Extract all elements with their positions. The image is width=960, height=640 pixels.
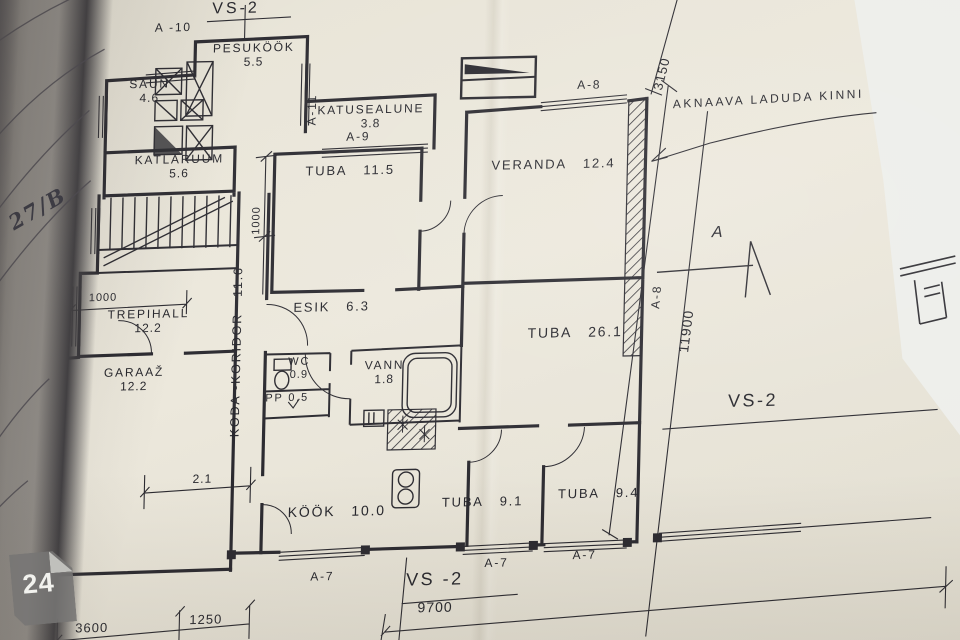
section-label-vs2-right: VS-2: [728, 390, 779, 413]
badge-page-number: 24: [10, 566, 66, 602]
dimension-1000-v: 1000: [250, 206, 264, 235]
room-label-katusealune: KATUSEALUNE3.8: [304, 101, 437, 133]
section-marker-a: A: [712, 223, 725, 242]
floorplan-photo: VS-2 A -10 PESUKÖÖK5.5 A-11 SAUN4.6 KATU…: [0, 0, 960, 640]
room-label-tuba-115: TUBA11.5: [305, 162, 395, 179]
room-label-veranda: VERANDA12.4: [491, 155, 615, 173]
dimension-1250: 1250: [189, 611, 222, 627]
section-label-vs2-bottom: VS -2: [406, 568, 464, 591]
room-label-tuba-91: TUBA9.1: [442, 493, 524, 510]
room-label-tuba-94: TUBA9.4: [558, 485, 640, 502]
room-label-kook: KÖÖK10.0: [288, 502, 386, 521]
room-label-pesukook: PESUKÖÖK5.5: [196, 39, 312, 70]
room-label-wc: WC0.9: [279, 355, 320, 382]
room-label-tuba-261: TUBA26.1: [527, 323, 622, 342]
room-label-saun: SAUN4.6: [109, 76, 190, 106]
room-label-esik: ESIK6.3: [293, 298, 370, 315]
drawing-sheet: VS-2 A -10 PESUKÖÖK5.5 A-11 SAUN4.6 KATU…: [0, 0, 960, 640]
window-label-a7-2: A-7: [484, 555, 508, 570]
window-label-a7-1: A-7: [310, 569, 334, 584]
room-label-vann: VANN1.8: [357, 357, 413, 387]
room-label-trepihall: TREPIHALL12.2: [88, 306, 209, 337]
room-label-pp: PP 0.5: [265, 392, 309, 406]
window-label-a10-top: A -10: [155, 20, 192, 35]
room-label-garaaz: GARAAŽ12.2: [79, 364, 190, 395]
dimension-9700: 9700: [417, 599, 453, 617]
stairs: [97, 195, 239, 273]
window-label-a7-3: A-7: [572, 548, 596, 563]
window-label-a8-right: A-8: [648, 284, 665, 309]
window-label-a8-top: A-8: [577, 77, 601, 92]
section-label-vs2-top: VS-2: [212, 0, 260, 19]
room-label-katlaruum: KATLARUUM5.6: [121, 151, 237, 182]
dimension-21: 2.1: [192, 472, 212, 487]
window-label-a9: A-9: [346, 129, 370, 144]
